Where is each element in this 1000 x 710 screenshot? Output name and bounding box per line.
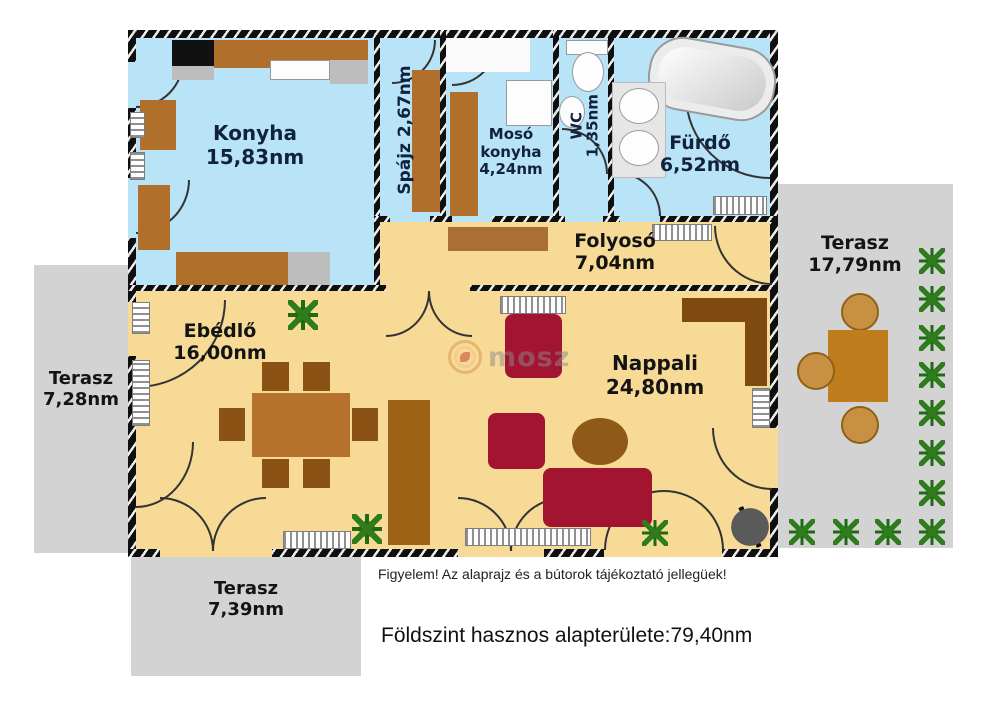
room-name: Ebédlő xyxy=(184,320,257,342)
plant-icon xyxy=(919,362,945,388)
total-area-text: Földszint hasznos alapterülete:79,40nm xyxy=(381,624,752,648)
room-name: Fürdő xyxy=(669,132,731,154)
terrace-chair xyxy=(797,352,835,390)
door-gap xyxy=(128,62,136,108)
room-label-ebedlo: Ebédlő 16,00nm xyxy=(140,320,300,365)
terrace-area: 7,39nm xyxy=(131,599,361,620)
door-gap xyxy=(565,216,603,222)
room-area: 1,35nm xyxy=(585,71,601,181)
room-name: Mosó konyha xyxy=(480,125,541,161)
corridor-mat xyxy=(448,227,548,251)
kitchen-counter-bottom xyxy=(176,252,288,285)
bath-sink-icon xyxy=(619,88,659,124)
kitchen-counter-bottom-gray xyxy=(288,252,330,285)
dining-chair xyxy=(303,362,330,391)
terrace-name: Terasz xyxy=(214,578,278,599)
radiator xyxy=(283,531,351,549)
stove-front xyxy=(172,66,214,80)
watermark: mosz xyxy=(448,340,570,374)
plant-icon xyxy=(919,480,945,506)
terrace-chair xyxy=(841,293,879,331)
terrace-label-bottom: Terasz 7,39nm xyxy=(131,578,361,620)
pantry-shelf xyxy=(412,70,440,212)
door-gap xyxy=(390,216,430,222)
terrace-name: Terasz xyxy=(49,368,113,389)
plant-icon xyxy=(833,519,859,545)
plant-icon xyxy=(789,519,815,545)
dining-chair xyxy=(352,408,378,441)
room-name: Nappali xyxy=(612,351,698,375)
room-area: 2,67nm xyxy=(395,65,415,137)
terrace-label-right: Terasz 17,79nm xyxy=(785,232,925,277)
kitchen-sink-icon xyxy=(270,60,330,80)
plant-icon xyxy=(352,514,382,544)
room-area: 16,00nm xyxy=(140,342,300,364)
dining-table xyxy=(252,393,350,457)
stove-icon xyxy=(172,40,214,66)
dining-chair xyxy=(262,362,289,391)
radiator xyxy=(752,388,770,428)
sofa-icon xyxy=(543,468,652,527)
radiator xyxy=(500,296,566,314)
rug xyxy=(388,400,430,545)
watermark-logo-icon xyxy=(448,340,482,374)
room-area: 7,04nm xyxy=(540,252,690,274)
radiator xyxy=(465,528,591,546)
room-label-furdo: Fürdő 6,52nm xyxy=(640,132,760,177)
kitchen-counter-corner xyxy=(330,60,368,84)
room-label-spajz: Spájz 2,67nm xyxy=(395,55,415,205)
washing-machine-icon xyxy=(506,80,552,126)
plant-icon xyxy=(642,520,668,546)
wall-kitchen-right xyxy=(374,30,380,291)
plant-icon xyxy=(919,286,945,312)
room-label-folyoso: Folyosó 7,04nm xyxy=(540,230,690,275)
watermark-text: mosz xyxy=(488,342,570,373)
radiator xyxy=(713,196,767,215)
dining-chair xyxy=(219,408,245,441)
corner-cabinet xyxy=(682,298,753,322)
dining-chair xyxy=(303,459,330,488)
room-label-wc: WC 1,35nm xyxy=(569,71,601,181)
terrace-chair xyxy=(841,406,879,444)
floor-plan: Konyha 15,83nm Spájz 2,67nm Mosó konyha … xyxy=(0,0,1000,710)
room-area: 15,83nm xyxy=(160,146,350,170)
door-gap xyxy=(452,216,492,222)
wall-moso-right xyxy=(553,30,559,222)
room-name: Spájz xyxy=(395,143,415,195)
room-name: Konyha xyxy=(213,121,297,145)
plant-icon xyxy=(919,400,945,426)
terrace-area: 17,79nm xyxy=(785,254,925,276)
terrace-name: Terasz xyxy=(821,232,889,254)
room-label-moso: Mosó konyha 4,24nm xyxy=(470,126,552,179)
radiator xyxy=(132,360,150,426)
corner-cabinet xyxy=(745,298,767,386)
coffee-table-icon xyxy=(572,418,628,465)
room-name: Folyosó xyxy=(574,230,656,252)
terrace-label-left: Terasz 7,28nm xyxy=(34,368,128,410)
plant-icon xyxy=(919,325,945,351)
door-gap xyxy=(620,216,660,222)
room-area: 6,52nm xyxy=(640,154,760,176)
dining-chair xyxy=(262,459,289,488)
plant-icon xyxy=(919,440,945,466)
room-label-nappali: Nappali 24,80nm xyxy=(575,352,735,399)
room-label-konyha: Konyha 15,83nm xyxy=(160,122,350,169)
room-area: 4,24nm xyxy=(470,161,552,179)
radiator xyxy=(130,112,145,138)
kitchen-cabinet-left-2 xyxy=(138,185,170,250)
terrace-area: 7,28nm xyxy=(34,389,128,410)
door-gap xyxy=(604,549,722,557)
disclaimer-text: Figyelem! Az alaprajz és a bútorok tájék… xyxy=(378,566,727,582)
laundry-counter xyxy=(446,38,530,72)
door-gap xyxy=(128,178,136,238)
room-area: 24,80nm xyxy=(575,376,735,400)
terrace-table xyxy=(828,330,888,402)
wall-left xyxy=(128,30,136,557)
radiator xyxy=(130,152,145,180)
armchair-icon xyxy=(488,413,545,469)
plant-icon xyxy=(875,519,901,545)
plant-icon xyxy=(919,519,945,545)
